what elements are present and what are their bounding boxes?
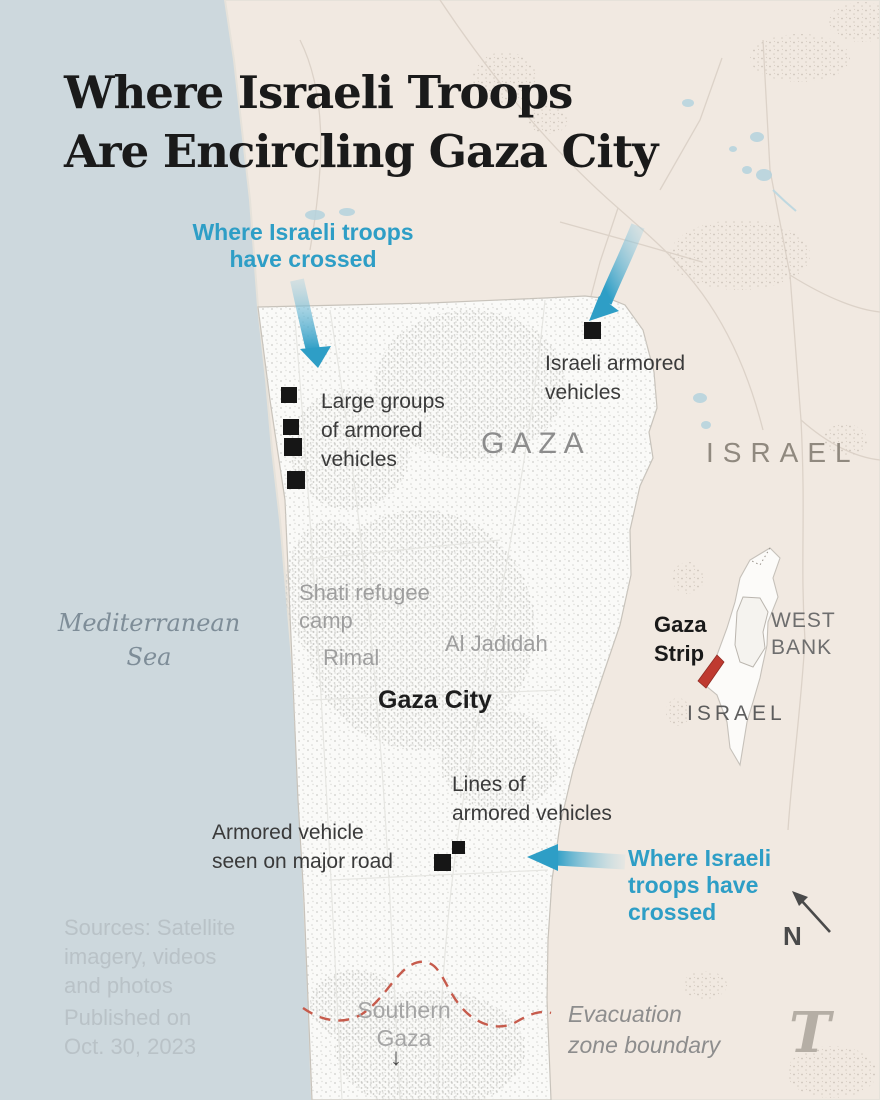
annotation-lines-of-armored: Lines of armored vehicles [452,770,612,828]
label-shati-camp: Shati refugee camp [299,579,430,635]
title-line-2: Are Encircling Gaza City [64,122,657,181]
arrow-crossing-bottom [556,858,625,862]
marker-israeli-armored [584,322,601,339]
marker-large-group-3 [284,438,302,456]
published-note: Published on Oct. 30, 2023 [64,1003,196,1061]
marker-large-group-1 [281,387,297,403]
nyt-logo: T [789,1000,831,1066]
label-evacuation-zone: Evacuation zone boundary [568,999,720,1061]
label-israel-region: ISRAEL [706,437,860,469]
annotation-israeli-armored: Israeli armored vehicles [545,349,685,407]
marker-road-vehicle [434,854,451,871]
southern-gaza-arrow-icon: ↓ [390,1044,402,1072]
north-label: N [783,921,802,952]
label-al-jadidah: Al Jadidah [445,631,548,657]
annotation-armored-major-road: Armored vehicle seen on major road [212,818,393,876]
marker-line-vehicles [452,841,465,854]
label-gaza-city: Gaza City [378,686,492,715]
sources-note: Sources: Satellite imagery, videos and p… [64,913,235,1000]
annotation-crossed-top: Where Israeli troops have crossed [170,219,436,273]
label-mediterranean-sea: Mediterranean Sea [53,606,245,674]
label-gaza-region: GAZA [481,427,591,461]
annotation-crossed-bottom: Where Israeli troops have crossed [628,845,771,926]
map-infographic: Where Israeli Troops Are Encircling Gaza… [0,0,880,1100]
marker-large-group-4 [287,471,305,489]
label-rimal: Rimal [323,645,379,671]
marker-large-group-2 [283,419,299,435]
page-title: Where Israeli Troops Are Encircling Gaza… [64,63,657,181]
inset-label-west-bank: WEST BANK [771,607,836,661]
label-southern-gaza: Southern Gaza [338,996,470,1052]
title-line-1: Where Israeli Troops [64,63,657,122]
inset-label-israel: ISRAEL [687,702,786,726]
annotation-large-groups: Large groups of armored vehicles [321,387,445,474]
inset-label-gaza-strip: Gaza Strip [654,610,707,668]
